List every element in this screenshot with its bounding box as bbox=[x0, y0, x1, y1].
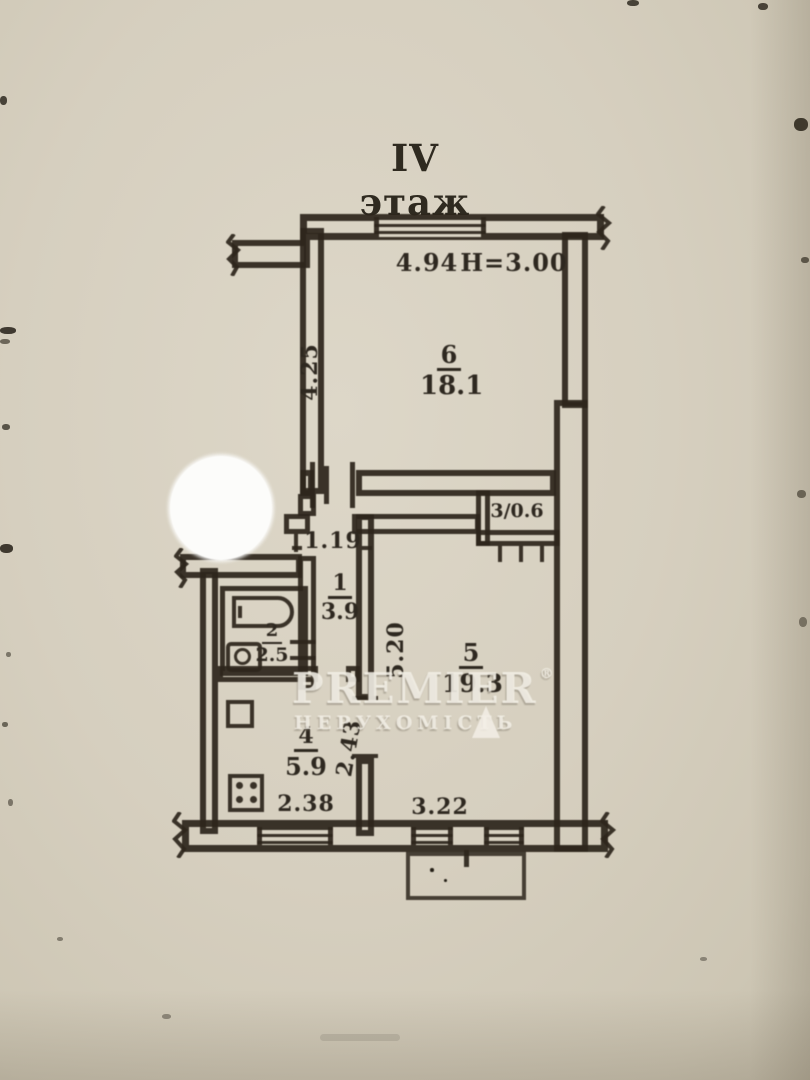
balcony bbox=[406, 852, 526, 900]
wall-room6-bottom-right bbox=[356, 470, 556, 496]
scan-speckle bbox=[799, 617, 807, 627]
scan-speckle bbox=[0, 327, 16, 334]
burner-icon bbox=[236, 782, 243, 789]
wall-right-lower bbox=[554, 400, 588, 852]
white-circle-stamp bbox=[170, 456, 272, 560]
scan-speckle bbox=[162, 1014, 171, 1019]
wall-bottom bbox=[182, 820, 608, 852]
watermark-brand-text: PREMIER bbox=[292, 664, 538, 713]
hall-number: 1 bbox=[328, 572, 351, 599]
door-leaf-room6 bbox=[324, 466, 329, 504]
kitchen-area: 5.9 bbox=[280, 754, 332, 779]
wall-hall-left-upper bbox=[298, 494, 316, 516]
closet-label: 3/0.6 bbox=[482, 502, 552, 522]
wall-closet-bottom bbox=[476, 530, 560, 546]
door-tick-closet bbox=[498, 546, 502, 562]
dim-tick bbox=[292, 546, 302, 550]
wall-corridor bbox=[180, 554, 302, 578]
scan-speckle bbox=[0, 96, 7, 105]
scan-speckle bbox=[797, 490, 806, 498]
scan-speckle bbox=[700, 957, 707, 961]
wall-left-exterior bbox=[200, 568, 218, 834]
burner-icon bbox=[236, 796, 243, 803]
scan-speckle bbox=[8, 799, 13, 806]
break-mark-icon bbox=[172, 812, 188, 858]
watermark-logo-icon bbox=[472, 706, 500, 738]
dim-room5-window: 3.22 bbox=[411, 794, 469, 820]
bath-label: 2 2.5 bbox=[252, 622, 292, 666]
scan-speckle bbox=[2, 424, 10, 430]
scan-speckle bbox=[6, 652, 11, 657]
break-mark-icon bbox=[596, 206, 612, 250]
scan-speckle bbox=[758, 3, 768, 10]
window-kitchen bbox=[257, 827, 333, 845]
scan-speckle bbox=[627, 0, 639, 6]
watermark-brand: PREMIER® bbox=[292, 664, 554, 713]
scan-smudge bbox=[320, 1034, 400, 1041]
room6-area: 18.1 bbox=[420, 373, 478, 400]
scan-speckle bbox=[57, 937, 63, 941]
sink-bowl-icon bbox=[234, 648, 251, 665]
door-tick-bathroom bbox=[290, 640, 316, 644]
room6-label: 6 18.1 bbox=[420, 342, 478, 400]
door-jamb-room6 bbox=[350, 462, 355, 508]
dim-ceiling-height: Н=3.00 bbox=[466, 248, 562, 277]
break-mark-icon bbox=[174, 548, 189, 588]
hall-area: 3.9 bbox=[316, 601, 364, 624]
burner-icon bbox=[250, 796, 257, 803]
scan-speckle bbox=[2, 722, 8, 727]
dim-room6-depth: 4.25 bbox=[299, 337, 321, 407]
bath-number: 2 bbox=[262, 622, 283, 644]
floor-plan-drawing: 4.94 Н=3.00 4.25 1.19 5.20 2.43 2.38 3.2… bbox=[0, 0, 810, 1080]
dim-hall-door: 1.19 bbox=[303, 528, 363, 554]
stove bbox=[228, 774, 264, 812]
room6-number: 6 bbox=[437, 342, 462, 371]
window-room5-right bbox=[484, 827, 524, 845]
scanned-floor-plan-page: IV этаж bbox=[0, 0, 810, 1080]
scan-speckle bbox=[0, 544, 13, 553]
kitchen-sink bbox=[226, 700, 254, 728]
break-mark-icon bbox=[600, 812, 616, 858]
hall-label: 1 3.9 bbox=[316, 572, 364, 624]
window-room5-left bbox=[411, 827, 453, 845]
scan-speckle bbox=[794, 118, 808, 131]
door-tick-bathroom bbox=[290, 656, 316, 660]
wall-top-left-extension bbox=[232, 240, 310, 268]
dim-kitchen-width: 2.38 bbox=[277, 791, 335, 817]
scan-speckle bbox=[801, 257, 809, 263]
door-tick-closet bbox=[519, 546, 523, 562]
closet-number-area: 3/0.6 bbox=[490, 500, 543, 522]
registered-mark-icon: ® bbox=[540, 666, 556, 682]
door-tick-closet bbox=[540, 546, 544, 562]
break-mark-icon bbox=[226, 234, 241, 276]
scan-speckle bbox=[0, 339, 10, 344]
bath-area: 2.5 bbox=[252, 646, 292, 666]
window-room6 bbox=[374, 217, 486, 237]
dim-room6-width: 4.94 bbox=[396, 248, 458, 277]
bathtub-tap-icon bbox=[238, 606, 242, 618]
burner-icon bbox=[250, 782, 257, 789]
